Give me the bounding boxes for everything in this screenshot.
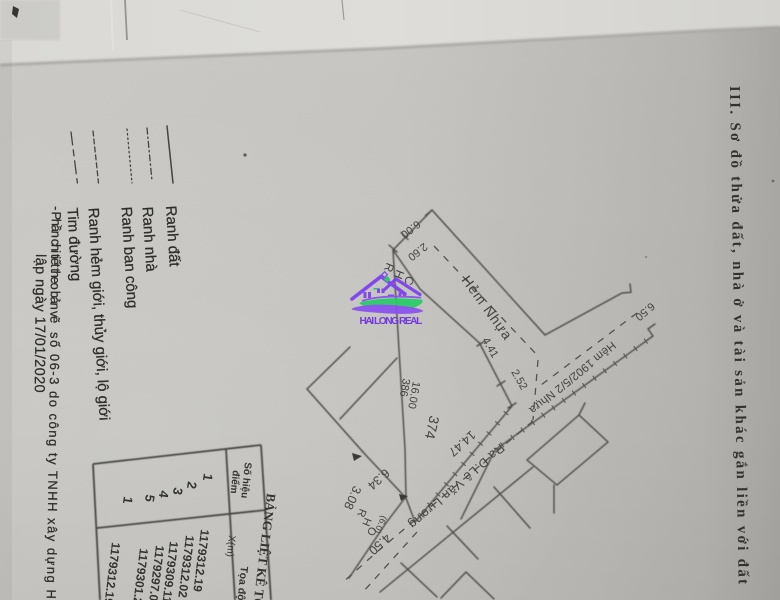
- svg-text:X(m): X(m): [224, 535, 237, 558]
- svg-text:HAI LONG REAL: HAI LONG REAL: [360, 316, 423, 327]
- svg-text:- Phần chi tiết theo bản vẽ: - Phần chi tiết theo bản vẽ: [47, 206, 64, 323]
- svg-text:lập ngày 17/01/2020: lập ngày 17/01/2020: [31, 254, 48, 393]
- svg-text:điểm: điểm: [228, 470, 242, 495]
